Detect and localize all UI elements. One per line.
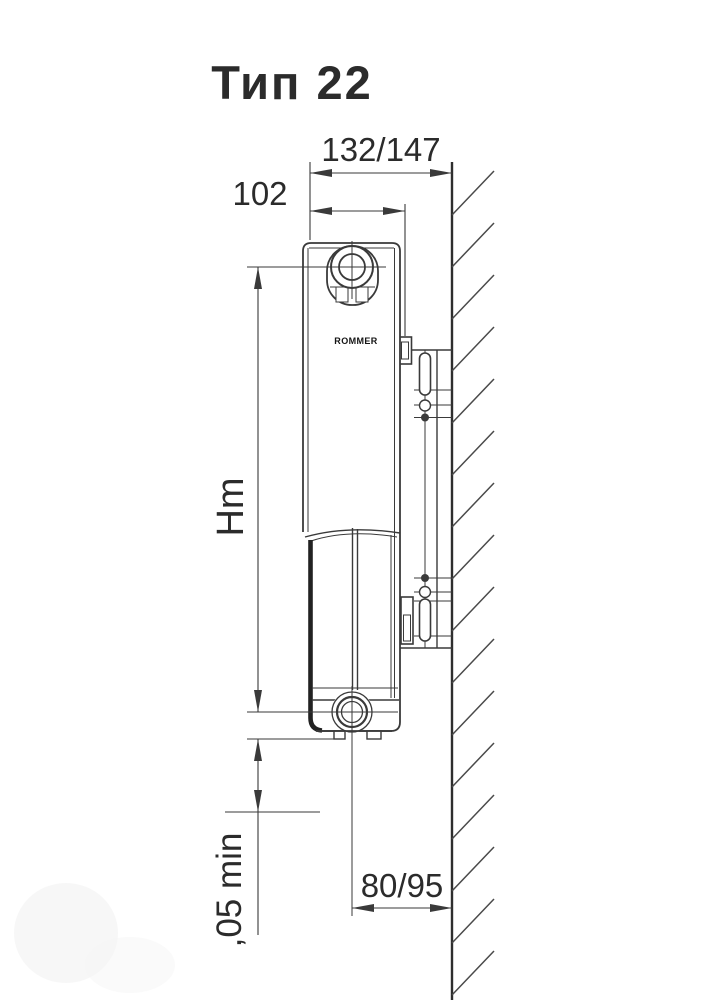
bracket-slot	[420, 353, 431, 395]
bracket-pin	[421, 574, 429, 582]
wall-section	[452, 162, 494, 1000]
lower-wall-bracket	[400, 574, 452, 648]
brand-logo: ROMMER	[334, 336, 377, 346]
bracket-slot	[420, 599, 431, 641]
dimension-floor-clearance: ,05 min	[210, 739, 345, 947]
watermark	[14, 883, 175, 993]
technical-drawing: Тип 22	[0, 0, 714, 1000]
bracket-hole	[420, 400, 431, 411]
dimension-label: 102	[232, 175, 287, 212]
bracket-clip-inner	[402, 342, 409, 359]
wall-hatching	[452, 171, 494, 995]
bracket-clip-inner	[404, 615, 411, 641]
dimension-bottom-pipe-to-wall: 80/95	[352, 867, 452, 912]
dimension-label: 132/147	[321, 131, 440, 168]
radiator-outline	[303, 243, 400, 731]
dimension-label: ,05 min	[210, 833, 249, 948]
bracket-hole	[420, 587, 431, 598]
dimension-depth-to-wall: 132/147	[310, 131, 452, 240]
bracket-pin	[421, 414, 429, 422]
dimension-mounting-height: Hm	[210, 267, 262, 712]
radiator-type22-drawing: Тип 22	[0, 0, 714, 1000]
radiator-body	[303, 243, 400, 739]
upper-wall-bracket	[399, 337, 453, 422]
drawing-title: Тип 22	[211, 56, 373, 109]
dimension-label: Hm	[210, 477, 252, 536]
bottom-tab	[367, 731, 381, 739]
dimension-label: 80/95	[361, 867, 444, 904]
bottom-tab	[334, 731, 345, 739]
